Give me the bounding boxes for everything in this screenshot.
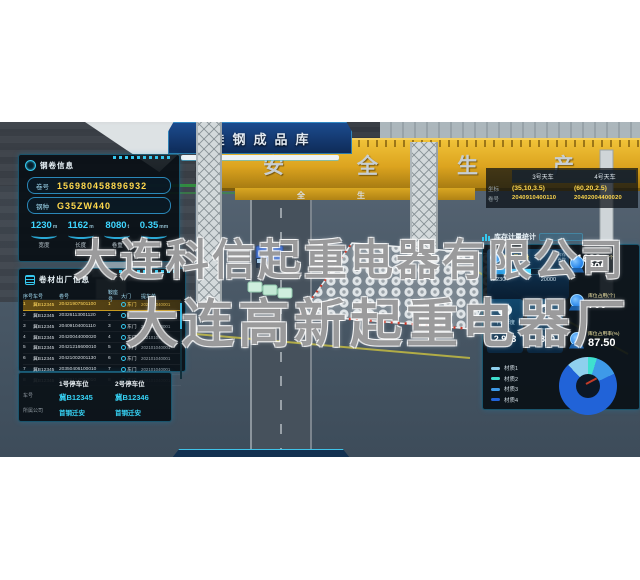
location-pin-icon (121, 324, 126, 329)
table-row[interactable]: 5冀B12345 204212166000105 东门 202101040001 (23, 343, 181, 354)
avg-width-tile: 平均宽度 (mm) 1870 (527, 299, 563, 353)
table-row[interactable]: 4冀B12345 204200440000204 东门 202101040001 (23, 332, 181, 343)
stat-arc-decor (31, 232, 57, 239)
table-row[interactable]: 2冀B12345 203261130011202 东门 202101040001 (23, 311, 181, 322)
kpi-total-slots: 库位总数(个)800 (569, 247, 637, 281)
kpi-used-slots: 库位占用(个)700 (569, 285, 637, 319)
badge-icon (569, 332, 584, 349)
crane-coordinates: (35,10,3.5) (512, 185, 574, 193)
shipment-panel: 卷材出厂信息 序号车号 卷号鞍座号 大门提车单 1冀B12345 2042190… (18, 268, 186, 372)
pallet-racks (248, 282, 292, 298)
stock-section-header: 库存计量统计 (482, 230, 638, 243)
panel-title: 钢卷信息 (40, 160, 74, 171)
coil-icon (498, 304, 512, 316)
truck-number: 冀B12346 (115, 392, 171, 403)
section-subtitle-decor (539, 233, 583, 241)
location-pin-icon (121, 356, 126, 361)
document-icon (25, 275, 35, 285)
crane-status-panel: 3号天车 4号天车 坐标 (35,10,3.5) (60,20,2.5) 卷号 … (486, 168, 638, 208)
field-label: 钢种 (36, 201, 49, 211)
field-label: 卷号 (36, 181, 49, 191)
capacity-progress-bar (490, 268, 558, 275)
coil-number-field: 卷号 156980458896932 (27, 177, 171, 194)
field-label: 车号 (23, 392, 59, 403)
coil-icon (538, 304, 552, 316)
stat-arc-decor (104, 232, 130, 239)
coil-count-label: 库存 卷数 (558, 253, 566, 262)
stat-length: 1162m 长度 (64, 221, 98, 249)
field-value: 156980458896932 (57, 181, 147, 191)
panel-dashes-decor (119, 270, 177, 273)
field-label: 卷号 (488, 195, 512, 203)
kpi-occupancy-rate: 库位占用率(%)87.50 (569, 323, 637, 357)
progress-current: 12230 (490, 277, 505, 283)
stat-width: 1230m 宽度 (27, 221, 61, 249)
parking-slot-title: 1号停车位 (59, 378, 115, 388)
location-pin-icon (121, 335, 126, 340)
progress-max: 20000 (541, 277, 556, 283)
shield-icon (490, 252, 501, 263)
table-row[interactable]: 3冀B12345 204091040011103 东门 202101040001 (23, 321, 181, 332)
table-row[interactable]: 6冀B12345 204210020011306 东门 202101040001 (23, 354, 181, 365)
parking-slot-title: 2号停车位 (115, 378, 171, 388)
throughput-title: 库存吞吐量 (503, 254, 529, 261)
panel-title: 卷材出厂信息 (39, 274, 90, 285)
badge-icon (569, 256, 584, 273)
panel-dashes-decor (113, 156, 171, 159)
legend-item: 材质4 (491, 395, 518, 406)
coil-icon (25, 160, 36, 171)
company-name: 首钢迁安 (59, 407, 115, 417)
screenshot-stage: 安 全 生 产 全 生 产 (0, 0, 640, 580)
location-pin-icon (121, 313, 126, 318)
avg-thickness-tile: 平均厚度 (mm) 2.983 (487, 299, 523, 353)
steel-grade-field: 钢种 G35ZW440 (27, 197, 171, 214)
legend-item: 材质2 (491, 374, 518, 385)
throughput-card: 库存吞吐量 库存 卷数 1683 12230 20000 (487, 249, 569, 299)
truck (256, 246, 283, 271)
field-value: G35ZW440 (57, 201, 111, 211)
table-row[interactable]: 1冀B12345 204219075011001 东门 202101040001 (23, 300, 181, 311)
bar-chart-icon (482, 233, 491, 241)
stat-thickness: 0.35mm 厚度 (137, 221, 171, 249)
crane-coil-number: 20402004400020 (574, 195, 636, 203)
badge-icon (569, 294, 584, 311)
location-pin-icon (121, 302, 126, 307)
material-donut (559, 357, 617, 415)
table-header-row: 序号车号 卷号鞍座号 大门提车单 (23, 289, 181, 300)
truck-number: 冀B12345 (59, 392, 115, 403)
field-label: 所属公司 (23, 407, 59, 417)
field-label: 坐标 (488, 185, 512, 193)
crane-coil-number: 2040910400110 (512, 195, 574, 203)
material-legend: 材质1 材质2 材质3 材质4 (491, 363, 518, 405)
stat-arc-decor (141, 232, 167, 239)
coil-info-panel: 钢卷信息 卷号 156980458896932 钢种 G35ZW440 1230… (18, 154, 180, 262)
legend-item: 材质3 (491, 384, 518, 395)
stat-arc-decor (68, 232, 94, 239)
section-title: 库存计量统计 (494, 232, 536, 242)
3d-scene-viewport[interactable]: 安 全 生 产 全 生 产 (0, 122, 640, 457)
stat-weight: 8080t 卷重 (100, 221, 134, 249)
company-name: 首钢迁安 (115, 407, 171, 417)
legend-item: 材质1 (491, 363, 518, 374)
crane-column-header: 3号天车 (512, 170, 574, 183)
stock-stats-panel: 库存吞吐量 库存 卷数 1683 12230 20000 平均厚度 (mm) 2… (482, 244, 640, 410)
crane-coordinates: (60,20,2.5) (574, 185, 636, 193)
table-scrollbar[interactable] (180, 301, 182, 379)
parking-panel: 1号停车位 2号停车位 车号 冀B12345 冀B12346 所属公司 首钢迁安… (18, 372, 172, 422)
crane-column-header: 4号天车 (574, 170, 636, 183)
location-pin-icon (121, 345, 126, 350)
